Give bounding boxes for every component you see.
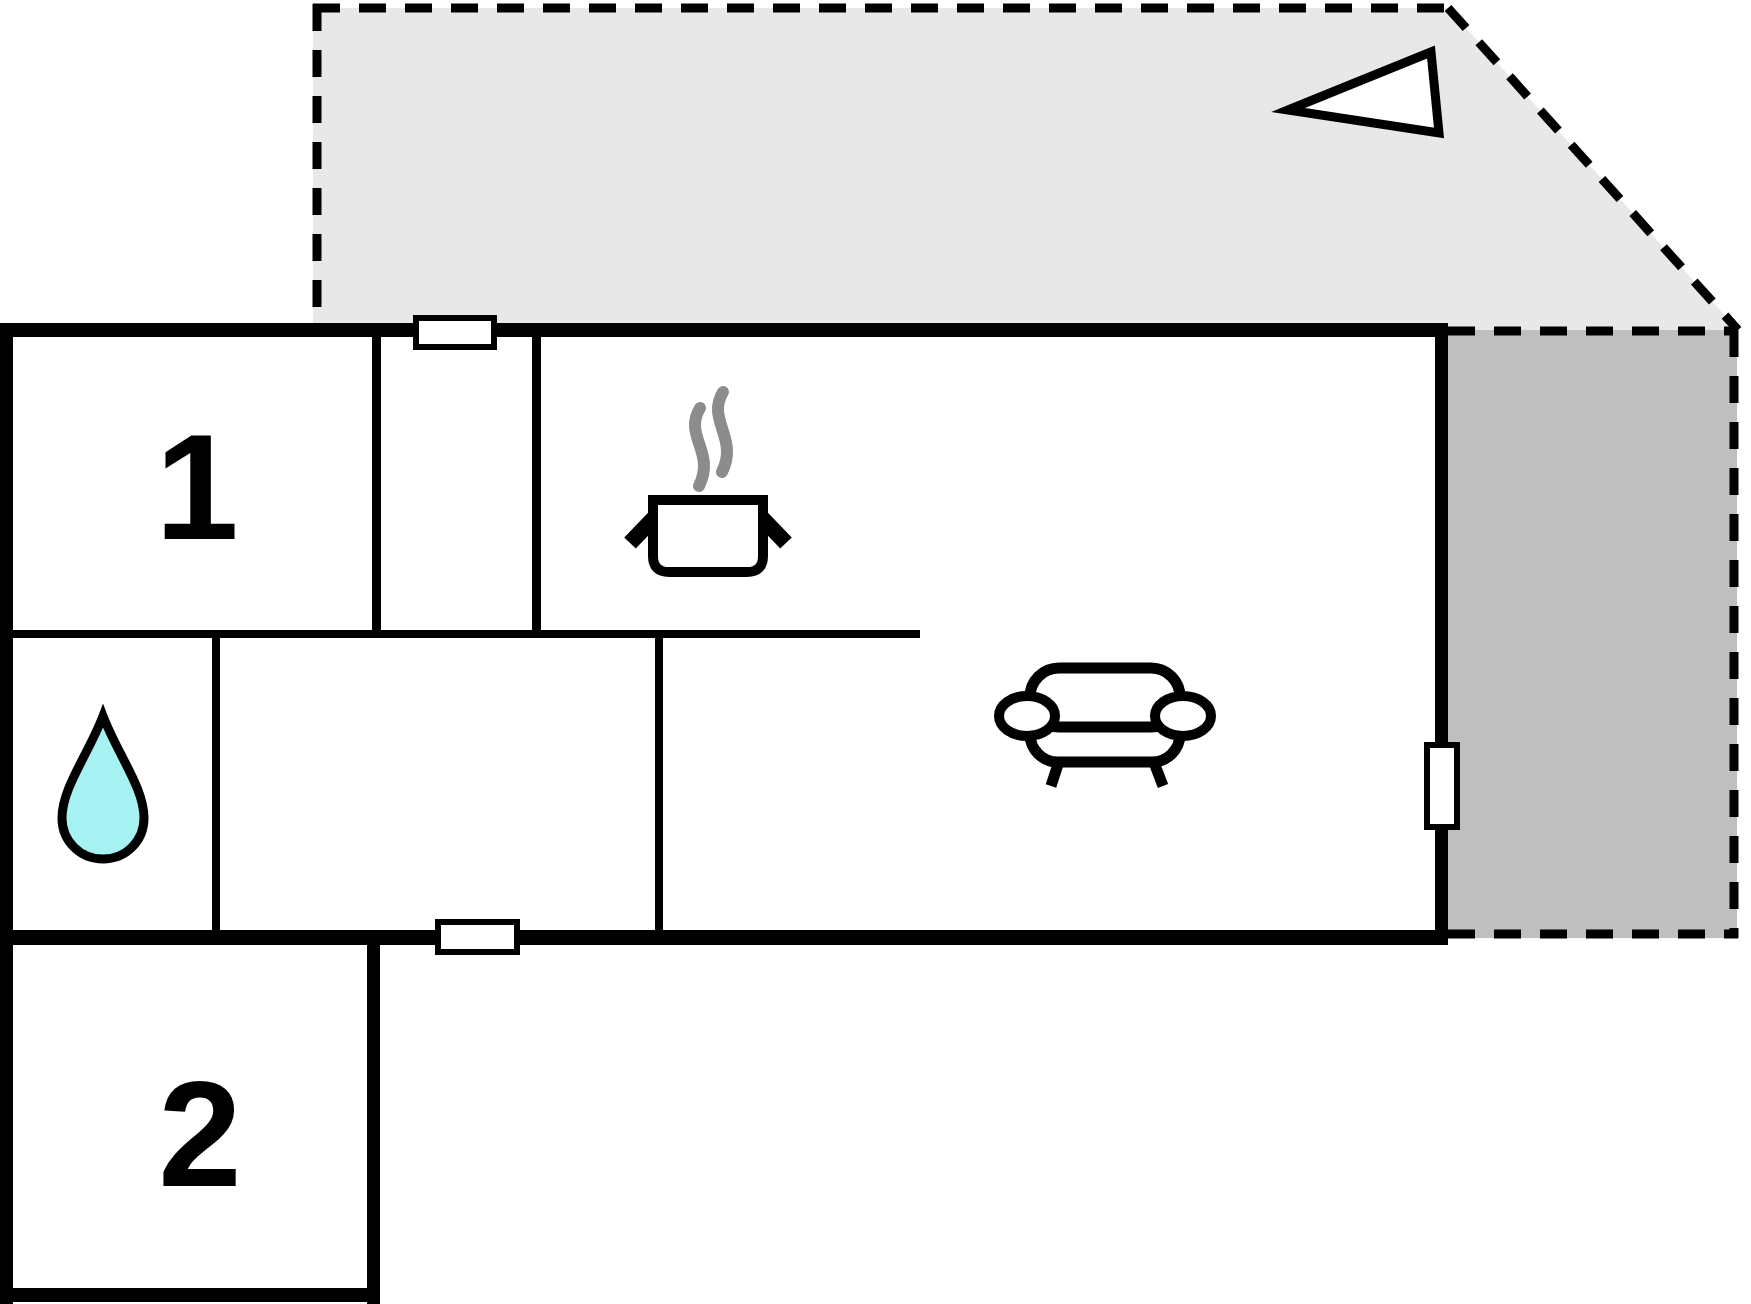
sofa-armrest-right [1155,696,1211,736]
wall-mid-horizontal [4,630,920,638]
wall-right [1435,323,1448,945]
floor-plan-canvas: 1 2 [0,0,1751,1304]
wall-entry-right [655,638,663,938]
pot-body [653,500,763,572]
floor-plan: 1 2 [0,0,1751,1304]
room-2-label: 2 [158,1050,241,1218]
wall-room1-right [372,337,381,638]
sofa-armrest-left [999,696,1055,736]
wall-room2-bottom [0,1288,380,1302]
room-1-label: 1 [155,403,238,571]
wall-left [0,323,13,1304]
window-marker-top [416,318,494,347]
wall-top [0,323,1448,337]
wall-hall-kitchen [532,337,541,638]
wall-bottom-main [0,930,1448,945]
terrace-right-area [1448,330,1737,938]
wall-room2-right [367,930,380,1304]
wall-bathroom-right [212,638,220,938]
door-marker-right [1427,745,1457,827]
door-marker-bottom [438,922,517,952]
